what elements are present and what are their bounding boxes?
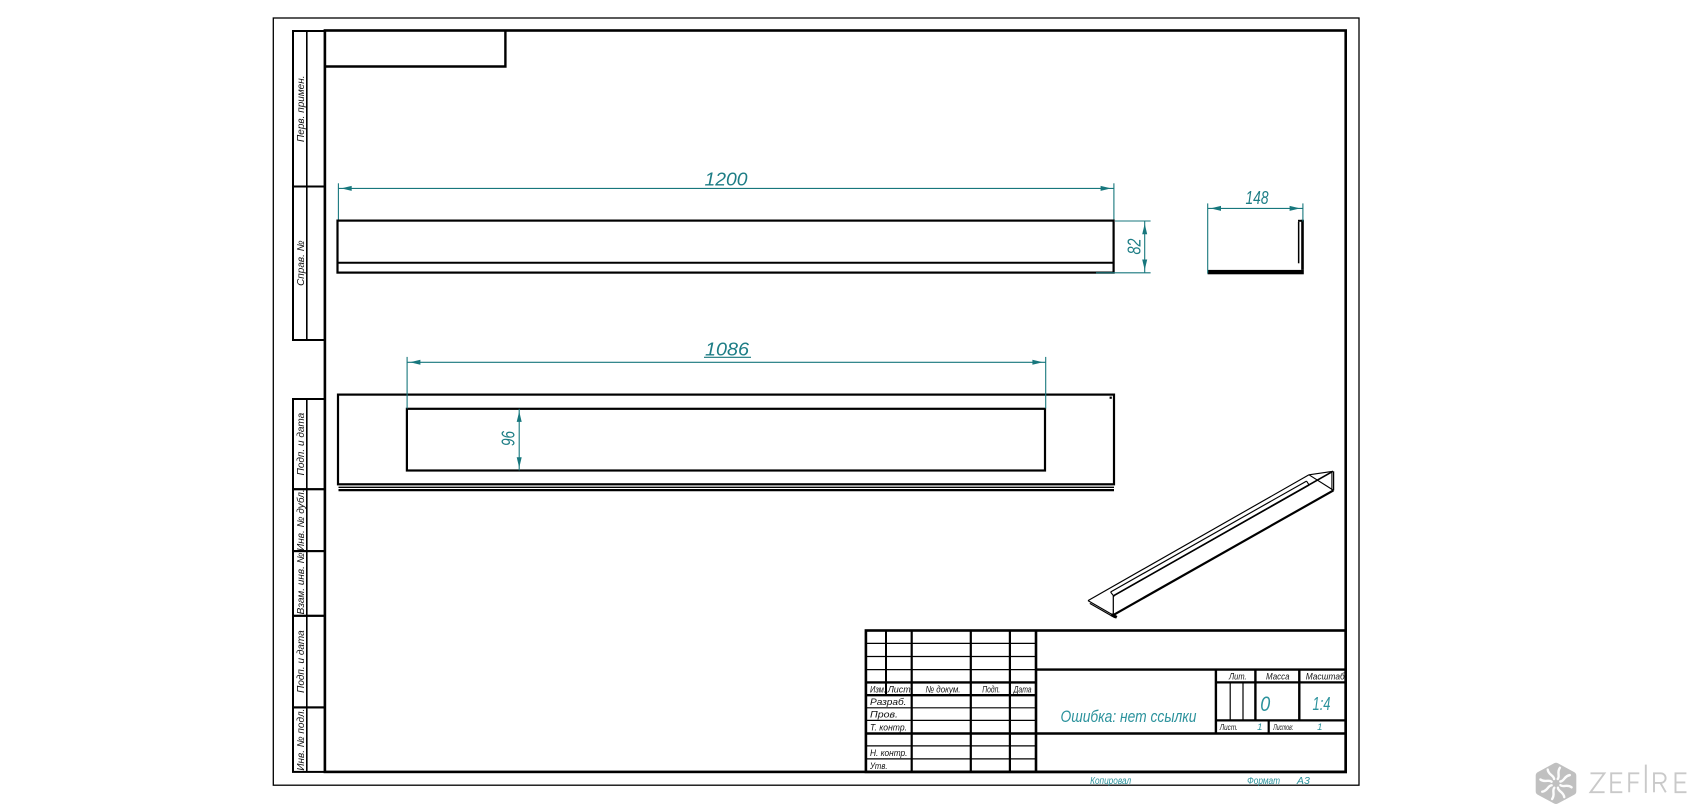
svg-text:Взам. инв. №: Взам. инв. № (296, 552, 307, 614)
svg-text:А3: А3 (1296, 776, 1311, 787)
svg-text:Инв. № подл.: Инв. № подл. (296, 709, 307, 771)
svg-text:Изм.: Изм. (870, 685, 886, 696)
svg-text:96: 96 (498, 430, 519, 446)
svg-text:82: 82 (1123, 238, 1144, 255)
svg-text:Лист: Лист (887, 685, 911, 696)
svg-text:Копировал: Копировал (1090, 776, 1131, 787)
svg-text:1:4: 1:4 (1313, 693, 1331, 714)
svg-text:Лист.: Лист. (1219, 722, 1238, 732)
svg-text:Лит.: Лит. (1228, 671, 1246, 682)
svg-text:Дата: Дата (1013, 685, 1032, 696)
svg-text:1: 1 (1257, 722, 1262, 733)
svg-text:Т. контр.: Т. контр. (870, 723, 907, 734)
svg-text:Подп.: Подп. (982, 685, 1000, 696)
svg-text:Разраб.: Разраб. (870, 697, 907, 708)
svg-text:1086: 1086 (705, 338, 750, 359)
svg-text:Формат: Формат (1247, 776, 1280, 787)
svg-text:Перв. примен.: Перв. примен. (296, 75, 307, 141)
svg-text:1: 1 (1317, 722, 1322, 733)
svg-text:Инв. № дубл.: Инв. № дубл. (295, 489, 307, 551)
svg-text:Масса: Масса (1266, 671, 1290, 682)
svg-text:1200: 1200 (705, 168, 749, 189)
svg-text:0: 0 (1260, 692, 1270, 716)
svg-text:Подп. и дата: Подп. и дата (296, 412, 307, 475)
svg-text:Пров.: Пров. (870, 710, 898, 721)
svg-text:Справ. №: Справ. № (296, 240, 307, 286)
svg-text:Утв.: Утв. (869, 761, 887, 772)
svg-text:Масштаб: Масштаб (1306, 671, 1346, 682)
svg-text:Листов:: Листов: (1273, 722, 1294, 732)
svg-text:Н. контр.: Н. контр. (870, 748, 908, 759)
svg-text:148: 148 (1246, 187, 1270, 208)
svg-text:Подп. и дата: Подп. и дата (296, 630, 307, 693)
svg-text:Ошибка: нет ссылки: Ошибка: нет ссылки (1061, 707, 1197, 726)
svg-text:№ докум.: № докум. (926, 685, 961, 696)
